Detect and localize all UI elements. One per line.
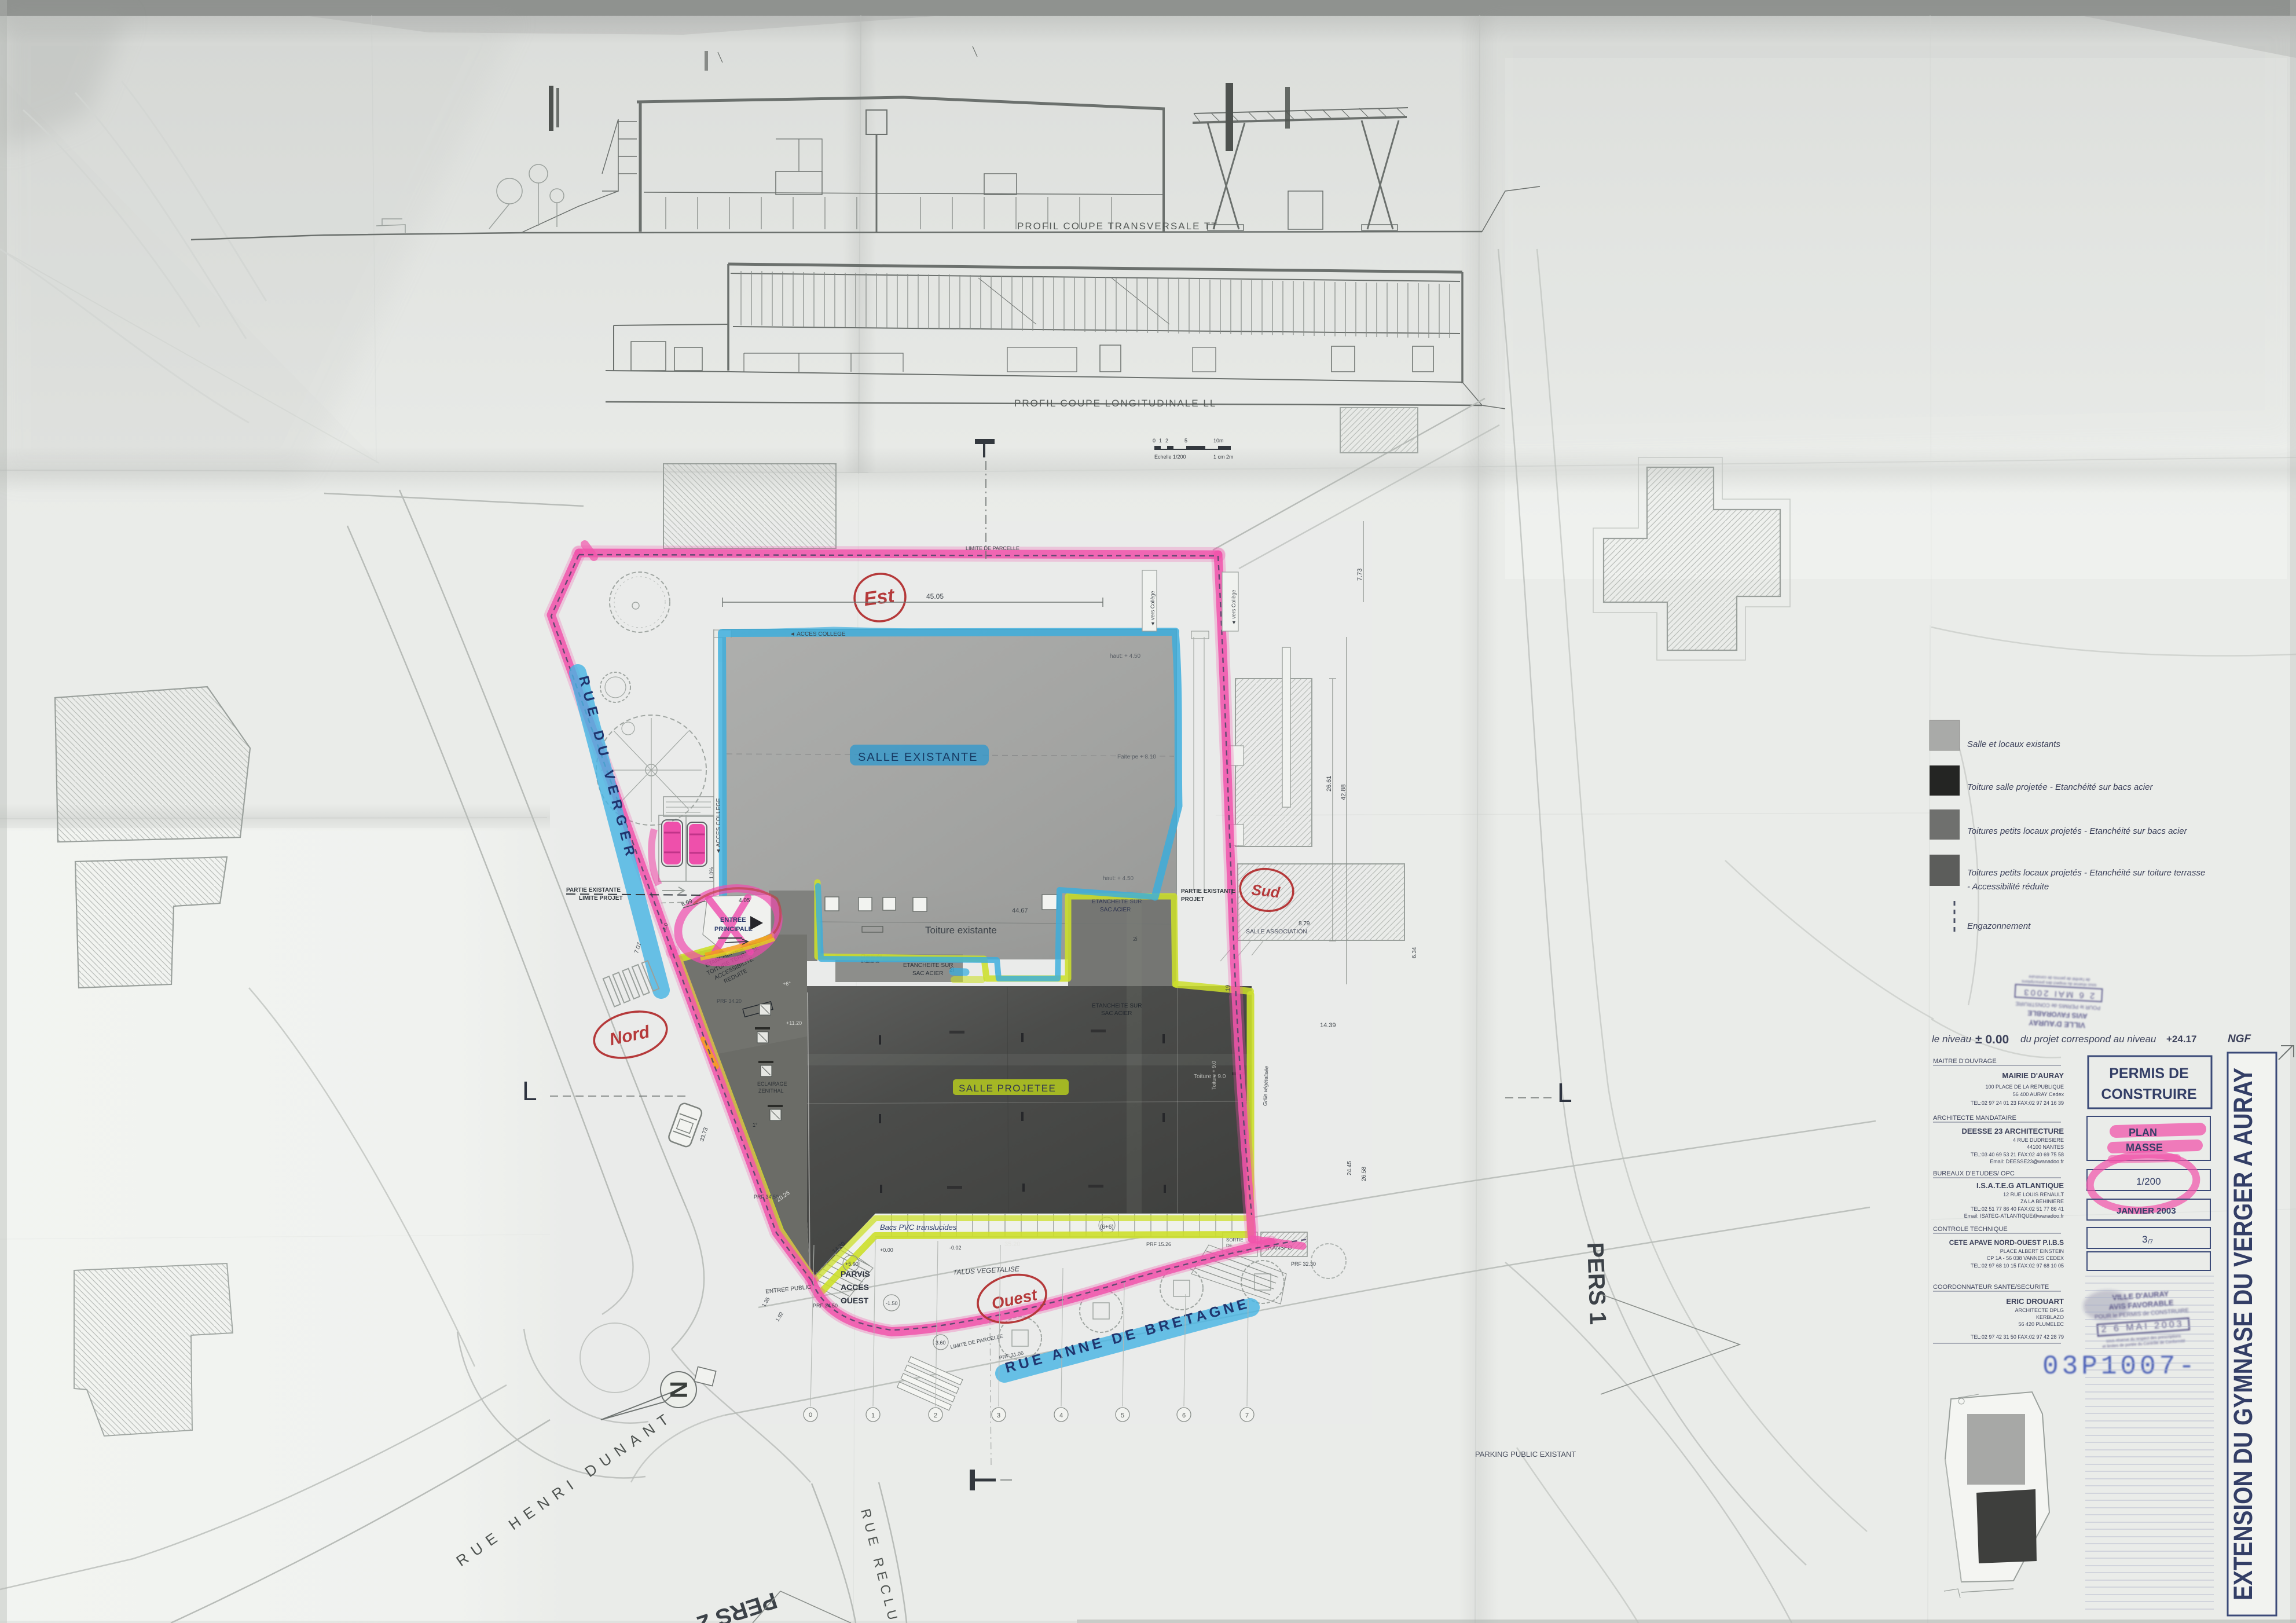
svg-text:SAC ACIER: SAC ACIER	[1101, 1010, 1132, 1017]
svg-text:Bacs PVC translucides: Bacs PVC translucides	[880, 1223, 957, 1232]
svg-text:+24.17: +24.17	[2166, 1034, 2196, 1045]
svg-text:3.60: 3.60	[936, 1340, 946, 1346]
svg-text:Sud: Sud	[1250, 881, 1281, 901]
svg-text:ARCHITECTE MANDATAIRE: ARCHITECTE MANDATAIRE	[1933, 1115, 2016, 1122]
svg-text:SALLE ASSOCIATION: SALLE ASSOCIATION	[1246, 928, 1307, 935]
svg-text:2: 2	[934, 1412, 937, 1419]
svg-text:3: 3	[997, 1412, 1000, 1419]
svg-text:Est: Est	[862, 584, 896, 610]
svg-text:1/200: 1/200	[2136, 1176, 2161, 1187]
svg-text:N: N	[665, 1381, 692, 1398]
svg-text:Email: ISATEG-ATLANTIQUE@wanad: Email: ISATEG-ATLANTIQUE@wanadoo.fr	[1964, 1213, 2064, 1219]
svg-text:SAC ACIER: SAC ACIER	[1100, 907, 1131, 913]
svg-text:TEL:02 51 77 86 40 FAX:02 51: TEL:02 51 77 86 40 FAX:02 51 77 86 41	[1971, 1206, 2064, 1212]
svg-text:haut: + 4.50: haut: + 4.50	[1103, 875, 1134, 882]
svg-text:MAIRIE D'AURAY: MAIRIE D'AURAY	[2002, 1071, 2064, 1080]
svg-text:1: 1	[871, 1412, 875, 1419]
svg-text:100 PLACE DE LA REPUBLIQUE: 100 PLACE DE LA REPUBLIQUE	[1985, 1084, 2064, 1090]
svg-text:24.45: 24.45	[1347, 1161, 1353, 1175]
svg-text:(6+6): (6+6)	[1100, 1224, 1114, 1230]
svg-text:6.34: 6.34	[1411, 947, 1418, 958]
svg-text:Faite pe + 8.10: Faite pe + 8.10	[1117, 754, 1156, 760]
svg-text:PARKING PUBLIC EXISTANT: PARKING PUBLIC EXISTANT	[1475, 1450, 1576, 1459]
svg-text:26.58: 26.58	[1361, 1167, 1367, 1181]
svg-text:56 420 PLUMELEC: 56 420 PLUMELEC	[2018, 1321, 2064, 1327]
svg-text:LIMITE DE PARCELLE: LIMITE DE PARCELLE	[966, 545, 1019, 551]
svg-text:+11.20: +11.20	[786, 1020, 802, 1026]
svg-text:6: 6	[1182, 1412, 1186, 1419]
svg-text:Toiture existante: Toiture existante	[925, 925, 997, 936]
svg-text:ETANCHEITE SUR: ETANCHEITE SUR	[1092, 1003, 1142, 1009]
svg-text:haut: + 4.50: haut: + 4.50	[1110, 653, 1141, 660]
svg-text:1°: 1°	[753, 1122, 758, 1128]
svg-text:PRINCIPALE: PRINCIPALE	[714, 926, 753, 933]
svg-text:5: 5	[1184, 438, 1187, 444]
svg-text:TEL:03 40 69 53 21 FAX:02 40: TEL:03 40 69 53 21 FAX:02 40 69 75 58	[1971, 1152, 2064, 1157]
svg-text:PRF 34.20: PRF 34.20	[717, 998, 742, 1004]
svg-text:Toiture + 9.0: Toiture + 9.0	[1194, 1074, 1226, 1080]
svg-text:42.88: 42.88	[1340, 784, 1347, 800]
svg-text:+6°: +6°	[783, 981, 791, 987]
svg-text:TEL:02 97 68 10 15 FAX:02 97: TEL:02 97 68 10 15 FAX:02 97 68 10 05	[1971, 1263, 2064, 1269]
svg-text:10m: 10m	[1213, 438, 1224, 444]
svg-text:12 RUE LOUIS RENAULT: 12 RUE LOUIS RENAULT	[2003, 1192, 2064, 1197]
svg-text:◄ vers Collège: ◄ vers Collège	[1231, 590, 1237, 625]
svg-text:BUREAUX D'ETUDES/ OPC: BUREAUX D'ETUDES/ OPC	[1933, 1170, 2015, 1177]
svg-text:44100 NANTES: 44100 NANTES	[2027, 1144, 2064, 1150]
svg-text:44.67: 44.67	[1012, 907, 1028, 914]
svg-text:- Accessibilité réduite: - Accessibilité réduite	[1967, 882, 2049, 892]
svg-text:TEL:02 97 24 01 23 FAX:02 9: TEL:02 97 24 01 23 FAX:02 97 24 16 39	[1971, 1100, 2064, 1106]
svg-text:NGF: NGF	[2228, 1033, 2252, 1045]
svg-text:ETANCHEITE SUR: ETANCHEITE SUR	[903, 962, 953, 969]
svg-text:PERS 1: PERS 1	[1582, 1242, 1611, 1325]
svg-text:PROJET: PROJET	[1181, 896, 1204, 903]
svg-text:7: 7	[1245, 1412, 1249, 1419]
svg-text:ZENITHAL: ZENITHAL	[758, 1088, 784, 1094]
svg-text:COORDONNATEUR SANTE/SECURITE: COORDONNATEUR SANTE/SECURITE	[1933, 1284, 2049, 1291]
svg-text:EXTENSION DU GYMNASE DU VERGER: EXTENSION DU GYMNASE DU VERGER A AURAY	[2228, 1068, 2258, 1600]
svg-text:± 0.00: ± 0.00	[1975, 1033, 2009, 1046]
svg-text:45.05: 45.05	[926, 592, 944, 600]
svg-text:4 RUE DUDRESIERE: 4 RUE DUDRESIERE	[2013, 1137, 2064, 1143]
svg-text:le niveau: le niveau	[1932, 1034, 1972, 1045]
svg-text:1.0%: 1.0%	[709, 867, 714, 879]
svg-text:L: L	[522, 1076, 537, 1106]
svg-text:ENTREE: ENTREE	[720, 917, 746, 924]
svg-text:03P1007-: 03P1007-	[2042, 1351, 2198, 1382]
svg-text:3.19: 3.19	[1225, 984, 1231, 996]
svg-text:7.73: 7.73	[1356, 569, 1363, 581]
svg-text:+0.00: +0.00	[880, 1247, 893, 1253]
svg-text:35.20: 35.20	[1004, 1241, 1021, 1248]
svg-text:Toitures petits locaux projeté: Toitures petits locaux projetés - Etanch…	[1967, 868, 2205, 878]
svg-text:ARCHITECTE DPLG: ARCHITECTE DPLG	[2015, 1307, 2064, 1313]
svg-text:PRF 34.50: PRF 34.50	[754, 1194, 779, 1200]
svg-text:TEL:02 97 42 31 50 FAX:02 97: TEL:02 97 42 31 50 FAX:02 97 42 28 79	[1971, 1334, 2064, 1340]
svg-text:26.61: 26.61	[1326, 775, 1333, 792]
svg-text:PROFIL COUPE TRANSVERSALE TT: PROFIL COUPE TRANSVERSALE TT	[1017, 221, 1219, 232]
svg-text:Toiture salle projetée - Etanc: Toiture salle projetée - Etanchéité sur …	[1967, 782, 2153, 792]
svg-text:du projet correspond au niveau: du projet correspond au niveau	[2020, 1034, 2156, 1045]
svg-text:PLACE ALBERT EINSTEIN: PLACE ALBERT EINSTEIN	[2000, 1248, 2064, 1254]
svg-text:KERBLAZO: KERBLAZO	[2036, 1314, 2064, 1320]
svg-text:56 400 AURAY Cedex: 56 400 AURAY Cedex	[2013, 1091, 2064, 1097]
svg-text:LIMITE PROJET: LIMITE PROJET	[579, 895, 623, 902]
svg-text:L: L	[1557, 1078, 1572, 1108]
svg-text:DEESSE 23 ARCHITECTURE: DEESSE 23 ARCHITECTURE	[1962, 1127, 2064, 1135]
svg-text:ACCES: ACCES	[841, 1283, 869, 1292]
svg-text:3: 3	[2142, 1234, 2147, 1245]
svg-text:0: 0	[809, 1412, 812, 1419]
svg-text:SAC ACIER: SAC ACIER	[912, 970, 943, 977]
svg-text:OUEST: OUEST	[841, 1296, 869, 1305]
svg-text:PRF 34.50: PRF 34.50	[813, 1303, 838, 1309]
svg-text:8.79: 8.79	[1299, 921, 1310, 927]
svg-text:◄ ACCES COLLEGE: ◄ ACCES COLLEGE	[790, 631, 846, 638]
svg-text:CP 1A - 56 038 VANNES CEDEX: CP 1A - 56 038 VANNES CEDEX	[1987, 1255, 2064, 1261]
svg-text:-0.02: -0.02	[949, 1245, 962, 1251]
svg-text:ERIC DROUART: ERIC DROUART	[2006, 1297, 2064, 1306]
svg-text:◄ vers Collège: ◄ vers Collège	[1150, 591, 1156, 627]
svg-text:Echelle 1/200: Echelle 1/200	[1154, 454, 1186, 460]
svg-text:PERMIS DE: PERMIS DE	[2109, 1065, 2189, 1082]
svg-text:Toitures petits locaux projeté: Toitures petits locaux projetés - Etanch…	[1967, 826, 2188, 836]
svg-text:MAITRE D'OUVRAGE: MAITRE D'OUVRAGE	[1933, 1058, 1997, 1065]
svg-text:PRF 15.26: PRF 15.26	[1146, 1241, 1171, 1247]
svg-text:4: 4	[1059, 1412, 1063, 1419]
svg-text:Email: DEESSE23@wanadoo.fr: Email: DEESSE23@wanadoo.fr	[1990, 1159, 2064, 1164]
svg-text:/7: /7	[2148, 1239, 2153, 1245]
svg-text:SALLE PROJETEE: SALLE PROJETEE	[959, 1083, 1056, 1094]
svg-text:0: 0	[1153, 438, 1156, 444]
svg-text:4.05: 4.05	[739, 897, 750, 904]
svg-text:Salle et locaux existants: Salle et locaux existants	[1967, 739, 2060, 749]
svg-text:Engazonnement: Engazonnement	[1967, 921, 2031, 931]
svg-text:CONTROLE TECHNIQUE: CONTROLE TECHNIQUE	[1933, 1226, 2008, 1233]
svg-text:-1.50: -1.50	[886, 1300, 898, 1306]
svg-text:+5.00: +5.00	[845, 1261, 859, 1267]
svg-text:◄ ACCES COLLEGE: ◄ ACCES COLLEGE	[716, 798, 722, 854]
svg-text:I.S.A.T.E.G ATLANTIQUE: I.S.A.T.E.G ATLANTIQUE	[1976, 1181, 2064, 1190]
svg-text:5: 5	[1121, 1412, 1124, 1419]
svg-text:JANVIER 2003: JANVIER 2003	[2117, 1206, 2176, 1216]
svg-text:PROFIL COUPE LONGITUDINALE LL: PROFIL COUPE LONGITUDINALE LL	[1014, 398, 1216, 409]
svg-text:ECLAIRAGE: ECLAIRAGE	[757, 1081, 787, 1087]
svg-text:SORTIE: SORTIE	[1226, 1237, 1244, 1243]
svg-text:14.39: 14.39	[1320, 1022, 1336, 1029]
svg-text:PLAN: PLAN	[2129, 1127, 2157, 1138]
svg-text:PARTIE EXISTANTE: PARTIE EXISTANTE	[1181, 888, 1235, 895]
svg-text:2: 2	[1165, 438, 1168, 444]
svg-text:ZA LA BEHINIERE: ZA LA BEHINIERE	[2020, 1199, 2064, 1204]
svg-text:CETE APAVE NORD-OUEST P.I.B.S: CETE APAVE NORD-OUEST P.I.B.S	[1949, 1239, 2064, 1247]
svg-text:CONSTRUIRE: CONSTRUIRE	[2101, 1086, 2196, 1102]
svg-text:PRF 32.30: PRF 32.30	[1291, 1261, 1316, 1267]
svg-text:1: 1	[1159, 438, 1162, 444]
svg-text:PARTIE EXISTANTE: PARTIE EXISTANTE	[566, 887, 621, 893]
svg-text:1 cm 2m: 1 cm 2m	[1213, 454, 1234, 460]
svg-text:SALLE EXISTANTE: SALLE EXISTANTE	[858, 751, 978, 764]
